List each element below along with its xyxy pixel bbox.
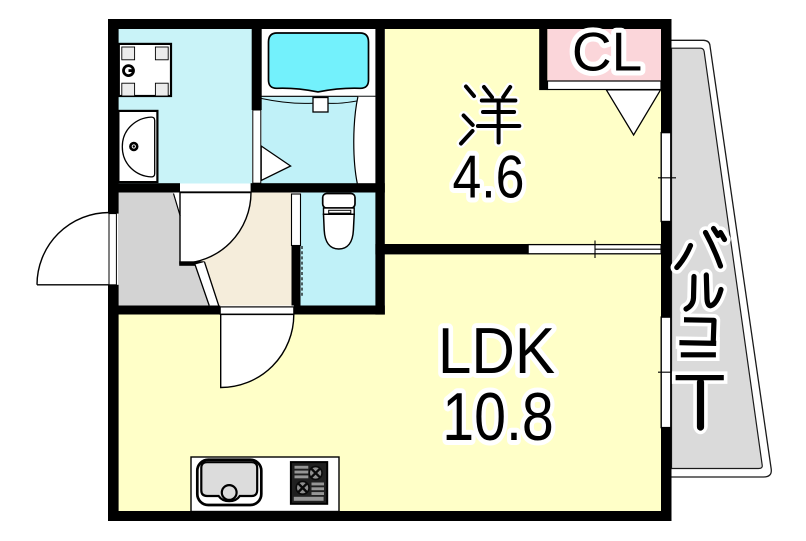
svg-text:LDK: LDK [438, 315, 555, 388]
svg-text:CL: CL [572, 21, 642, 83]
svg-text:4.6: 4.6 [453, 143, 525, 210]
svg-text:10.8: 10.8 [442, 379, 554, 455]
